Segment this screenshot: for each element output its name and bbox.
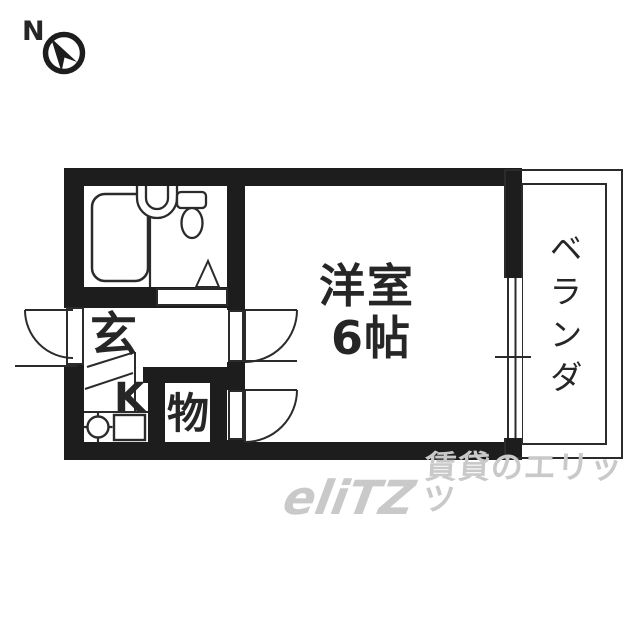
kitchen-label: K: [114, 378, 145, 418]
toilet-bowl-icon: [182, 208, 203, 238]
bathroom-door-triangle: [196, 261, 219, 287]
balcony-label: ベランダ: [547, 231, 580, 403]
watermark-logo: eliTZ: [280, 475, 419, 522]
entrance-threshold: [67, 308, 83, 364]
watermark: eliTZ 賃貸のエリッツ: [284, 451, 640, 522]
main-room-door: [245, 310, 297, 362]
bathroom-threshold: [157, 289, 227, 305]
entrance-door-arc: [25, 310, 73, 358]
washbasin-bowl-icon: [146, 186, 168, 209]
wall-interior-lower: [227, 440, 245, 460]
closet-door-threshold: [229, 391, 243, 439]
main-door-arc: [245, 310, 297, 362]
compass-north-label: N: [22, 18, 45, 45]
compass-north-icon: [46, 35, 83, 73]
watermark-caption: 賃貸のエリッツ: [423, 451, 640, 515]
wall-closet-right: [210, 367, 227, 444]
floorplan-canvas: N 洋室 6帖 玄 K 物 ベランダ eliTZ 賃貸のエリッツ: [0, 0, 640, 640]
main-room-name: 洋室: [319, 263, 415, 309]
wall-closet-left: [148, 367, 165, 444]
wall-interior-upper: [227, 186, 245, 310]
closet-door: [245, 390, 297, 442]
wall-right-upper: [504, 168, 522, 278]
closet-door-arc: [245, 390, 297, 442]
entrance-label: 玄: [90, 312, 137, 359]
toilet-tank-icon: [177, 192, 206, 208]
bathroom: [92, 186, 219, 287]
window: [495, 278, 531, 438]
main-room-size: 6帖: [331, 315, 411, 361]
stove-burner-icon: [88, 417, 109, 438]
main-door-threshold: [229, 311, 243, 361]
closet-label: 物: [167, 393, 209, 435]
wall-top: [64, 168, 522, 186]
